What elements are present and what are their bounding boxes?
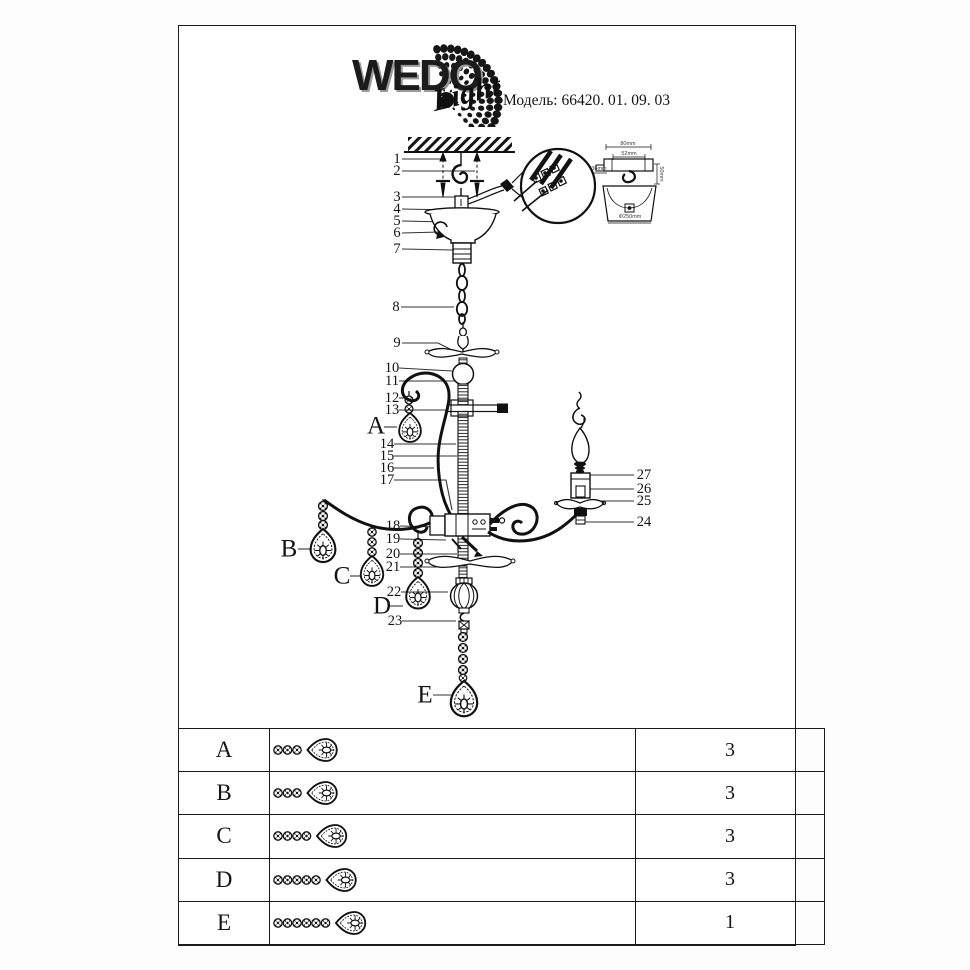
part-image-cell — [270, 815, 636, 858]
scroll-arm-a — [402, 373, 452, 517]
parts-table-row: D3 — [179, 858, 825, 901]
pendant-chain-icon — [270, 734, 340, 766]
pendant-c — [361, 526, 383, 586]
dim-width-outer: 80mm — [620, 141, 635, 147]
part-letter: B — [179, 772, 270, 815]
pendant-e — [451, 633, 477, 717]
cross-bar — [447, 400, 508, 416]
callout-7: 7 — [393, 242, 400, 257]
callout-11: 11 — [385, 374, 399, 389]
candle-socket — [554, 392, 605, 524]
callout-2: 2 — [393, 164, 400, 179]
chain — [457, 264, 467, 324]
part-quantity: 3 — [636, 858, 825, 901]
ceiling-hatch — [404, 137, 515, 152]
callout-B: B — [281, 537, 298, 562]
part-quantity: 3 — [636, 729, 825, 772]
part-letter: E — [179, 901, 270, 944]
callout-E: E — [417, 683, 432, 708]
parts-table-row: C3 — [179, 815, 825, 858]
part-image-cell — [270, 772, 636, 815]
part-image-cell — [270, 901, 636, 944]
ceiling-hook — [453, 152, 467, 197]
callout-8: 8 — [392, 300, 399, 315]
lower-saucer — [425, 556, 515, 579]
callout-24: 24 — [637, 515, 652, 530]
instruction-sheet: WEDO Light Модель: 66420. 01. 09. 03 80m… — [0, 0, 970, 970]
part-letter: A — [179, 729, 270, 772]
callout-A: A — [367, 414, 385, 439]
model-value: 66420. 01. 09. 03 — [561, 92, 670, 109]
callout-13: 13 — [385, 403, 400, 418]
parts-table: A3B3C3D3E1 — [178, 728, 795, 945]
parts-table-row: A3 — [179, 729, 825, 772]
dim-screw: 36mm — [591, 166, 606, 172]
dim-canopy: Φ250mm — [619, 214, 642, 220]
left-arm — [324, 500, 432, 532]
callout-D: D — [373, 594, 391, 619]
glass-ball — [453, 364, 474, 385]
brand-logo: WEDO Light Модель: 66420. 01. 09. 03 — [340, 35, 690, 125]
callout-19: 19 — [386, 532, 401, 547]
parts-table-row: B3 — [179, 772, 825, 815]
pendant-chain-icon — [270, 907, 368, 939]
callout-21: 21 — [386, 560, 401, 575]
part-quantity: 3 — [636, 815, 825, 858]
pendant-b — [311, 499, 336, 562]
model-label: Модель: — [503, 92, 558, 109]
parts-table-row: E1 — [179, 901, 825, 944]
part-quantity: 1 — [636, 901, 825, 944]
dim-height: 50mm — [658, 166, 664, 181]
part-image-cell — [270, 729, 636, 772]
canopy — [425, 196, 499, 263]
callout-9: 9 — [393, 336, 400, 351]
callout-C: C — [334, 564, 351, 589]
ribbed-ball — [451, 578, 478, 613]
callout-6: 6 — [393, 226, 400, 241]
part-image-cell — [270, 858, 636, 901]
pendant-chain-icon — [270, 864, 359, 896]
bottom-finial — [459, 613, 469, 633]
upper-finial — [458, 322, 468, 353]
callout-27: 27 — [637, 468, 652, 483]
model-number: Модель: 66420. 01. 09. 03 — [503, 92, 670, 110]
callout-17: 17 — [380, 473, 395, 488]
callout-26: 26 — [637, 482, 652, 497]
part-quantity: 3 — [636, 772, 825, 815]
dim-width-inner: 52mm — [621, 151, 636, 157]
part-letter: D — [179, 858, 270, 901]
pendant-chain-icon — [270, 820, 349, 852]
pendant-d — [406, 530, 430, 608]
part-letter: C — [179, 815, 270, 858]
pendant-chain-icon — [270, 777, 340, 809]
